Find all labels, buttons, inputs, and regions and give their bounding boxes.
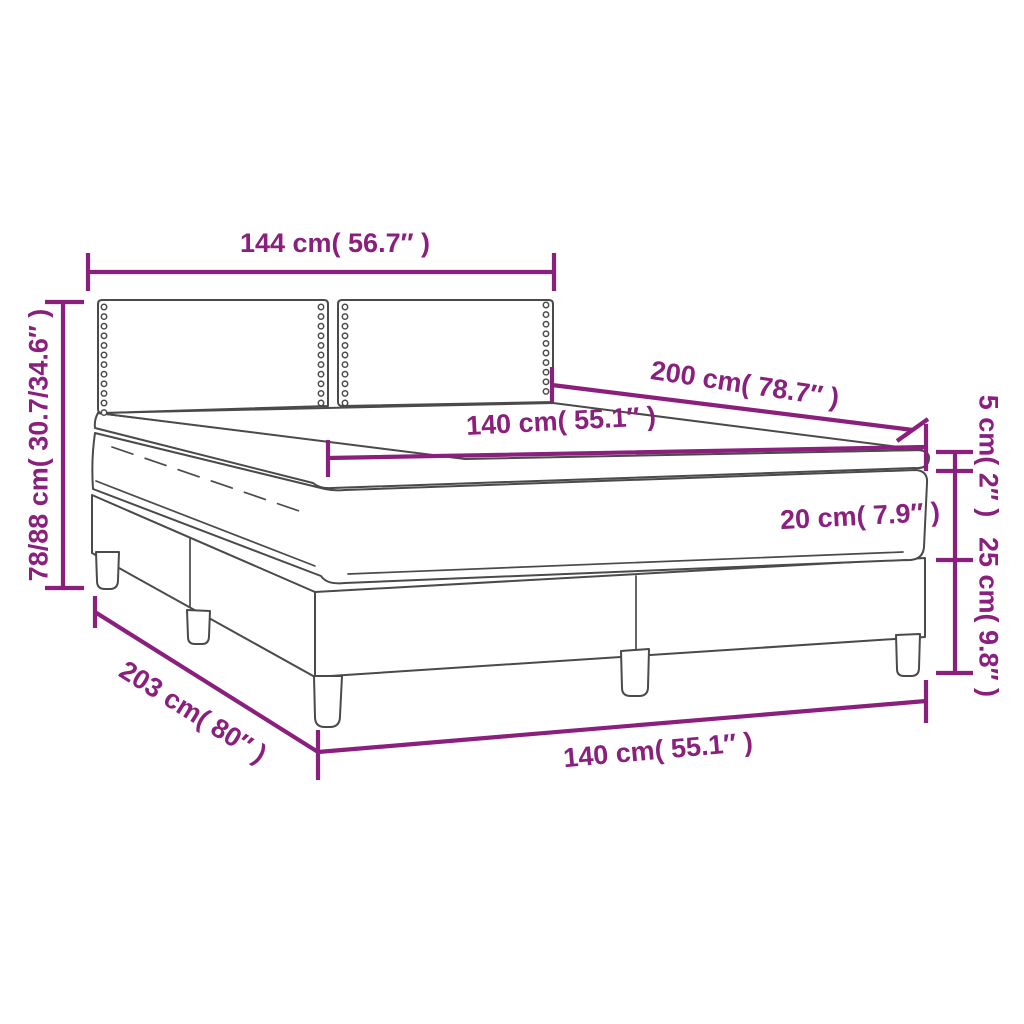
nailhead-stud-icon bbox=[543, 341, 548, 346]
dim-total-height-label: 78/88 cm( 30.7/34.6″ ) bbox=[23, 309, 53, 582]
nailhead-stud-icon bbox=[101, 314, 106, 319]
dim-headboard-width-label: 144 cm( 56.7″ ) bbox=[240, 228, 430, 258]
nailhead-stud-icon bbox=[318, 372, 323, 377]
nailhead-stud-icon bbox=[101, 324, 106, 329]
nailhead-stud-icon bbox=[101, 362, 106, 367]
nailhead-stud-icon bbox=[318, 362, 323, 367]
dim-bed-length-label: 200 cm( 78.7″ ) bbox=[649, 355, 841, 413]
dim-base-width: 140 cm( 55.1″ ) bbox=[318, 680, 926, 780]
nailhead-stud-icon bbox=[342, 314, 347, 319]
nailhead-stud-icon bbox=[318, 391, 323, 396]
dim-right-bracket: 5 cm( 2″ ) 25 cm( 9.8″ ) bbox=[936, 395, 1004, 697]
nailhead-stud-icon bbox=[318, 381, 323, 386]
nailhead-stud-icon bbox=[101, 391, 106, 396]
dimension-diagram: 144 cm( 56.7″ ) 78/88 cm( 30.7/34.6″ ) 2… bbox=[0, 0, 1024, 1024]
nailhead-stud-icon bbox=[342, 333, 347, 338]
nailhead-stud-icon bbox=[101, 343, 106, 348]
bed-leg-head-left bbox=[96, 552, 119, 589]
nailhead-stud-icon bbox=[318, 343, 323, 348]
nailhead-stud-icon bbox=[543, 360, 548, 365]
dim-base-width-label: 140 cm( 55.1″ ) bbox=[562, 727, 754, 773]
nailhead-stud-icon bbox=[101, 400, 106, 405]
bed-leg-front-corner bbox=[314, 676, 342, 727]
nailhead-stud-icon bbox=[101, 381, 106, 386]
nailhead-stud-icon bbox=[543, 331, 548, 336]
dim-base-height-label: 25 cm( 9.8″ ) bbox=[974, 537, 1004, 697]
nailhead-stud-icon bbox=[318, 314, 323, 319]
bed-dimension-drawing: 144 cm( 56.7″ ) 78/88 cm( 30.7/34.6″ ) 2… bbox=[0, 0, 1024, 1024]
nailhead-stud-icon bbox=[342, 343, 347, 348]
nailhead-stud-icon bbox=[543, 389, 548, 394]
nailhead-stud-icon bbox=[342, 304, 347, 309]
nailhead-stud-icon bbox=[543, 350, 548, 355]
nailhead-stud-icon bbox=[543, 370, 548, 375]
headboard-left-panel bbox=[98, 300, 328, 413]
dim-headboard-width: 144 cm( 56.7″ ) bbox=[88, 228, 554, 291]
nailhead-stud-icon bbox=[318, 333, 323, 338]
nailhead-stud-icon bbox=[543, 379, 548, 384]
nailhead-stud-icon bbox=[101, 352, 106, 357]
nailhead-stud-icon bbox=[543, 312, 548, 317]
bed-leg-rear-right bbox=[896, 634, 920, 676]
nailhead-stud-icon bbox=[543, 302, 548, 307]
bed-leg-mid-left bbox=[187, 610, 210, 644]
nailhead-stud-icon bbox=[342, 391, 347, 396]
dim-total-height: 78/88 cm( 30.7/34.6″ ) bbox=[23, 302, 84, 588]
nailhead-stud-icon bbox=[342, 352, 347, 357]
nailhead-stud-icon bbox=[342, 324, 347, 329]
nailhead-stud-icon bbox=[318, 304, 323, 309]
nailhead-stud-icon bbox=[342, 400, 347, 405]
dim-topper-thickness-label: 5 cm( 2″ ) bbox=[974, 395, 1004, 517]
nailhead-stud-icon bbox=[342, 381, 347, 386]
nailhead-stud-icon bbox=[318, 352, 323, 357]
bed-leg-mid-foot bbox=[621, 649, 649, 696]
nailhead-stud-icon bbox=[342, 372, 347, 377]
nailhead-stud-icon bbox=[101, 372, 106, 377]
nailhead-stud-icon bbox=[318, 324, 323, 329]
nailhead-stud-icon bbox=[342, 362, 347, 367]
nailhead-stud-icon bbox=[101, 333, 106, 338]
nailhead-stud-icon bbox=[318, 400, 323, 405]
nailhead-stud-icon bbox=[101, 304, 106, 309]
headboard-right-panel bbox=[338, 300, 553, 406]
nailhead-stud-icon bbox=[101, 410, 106, 415]
nailhead-stud-icon bbox=[543, 322, 548, 327]
